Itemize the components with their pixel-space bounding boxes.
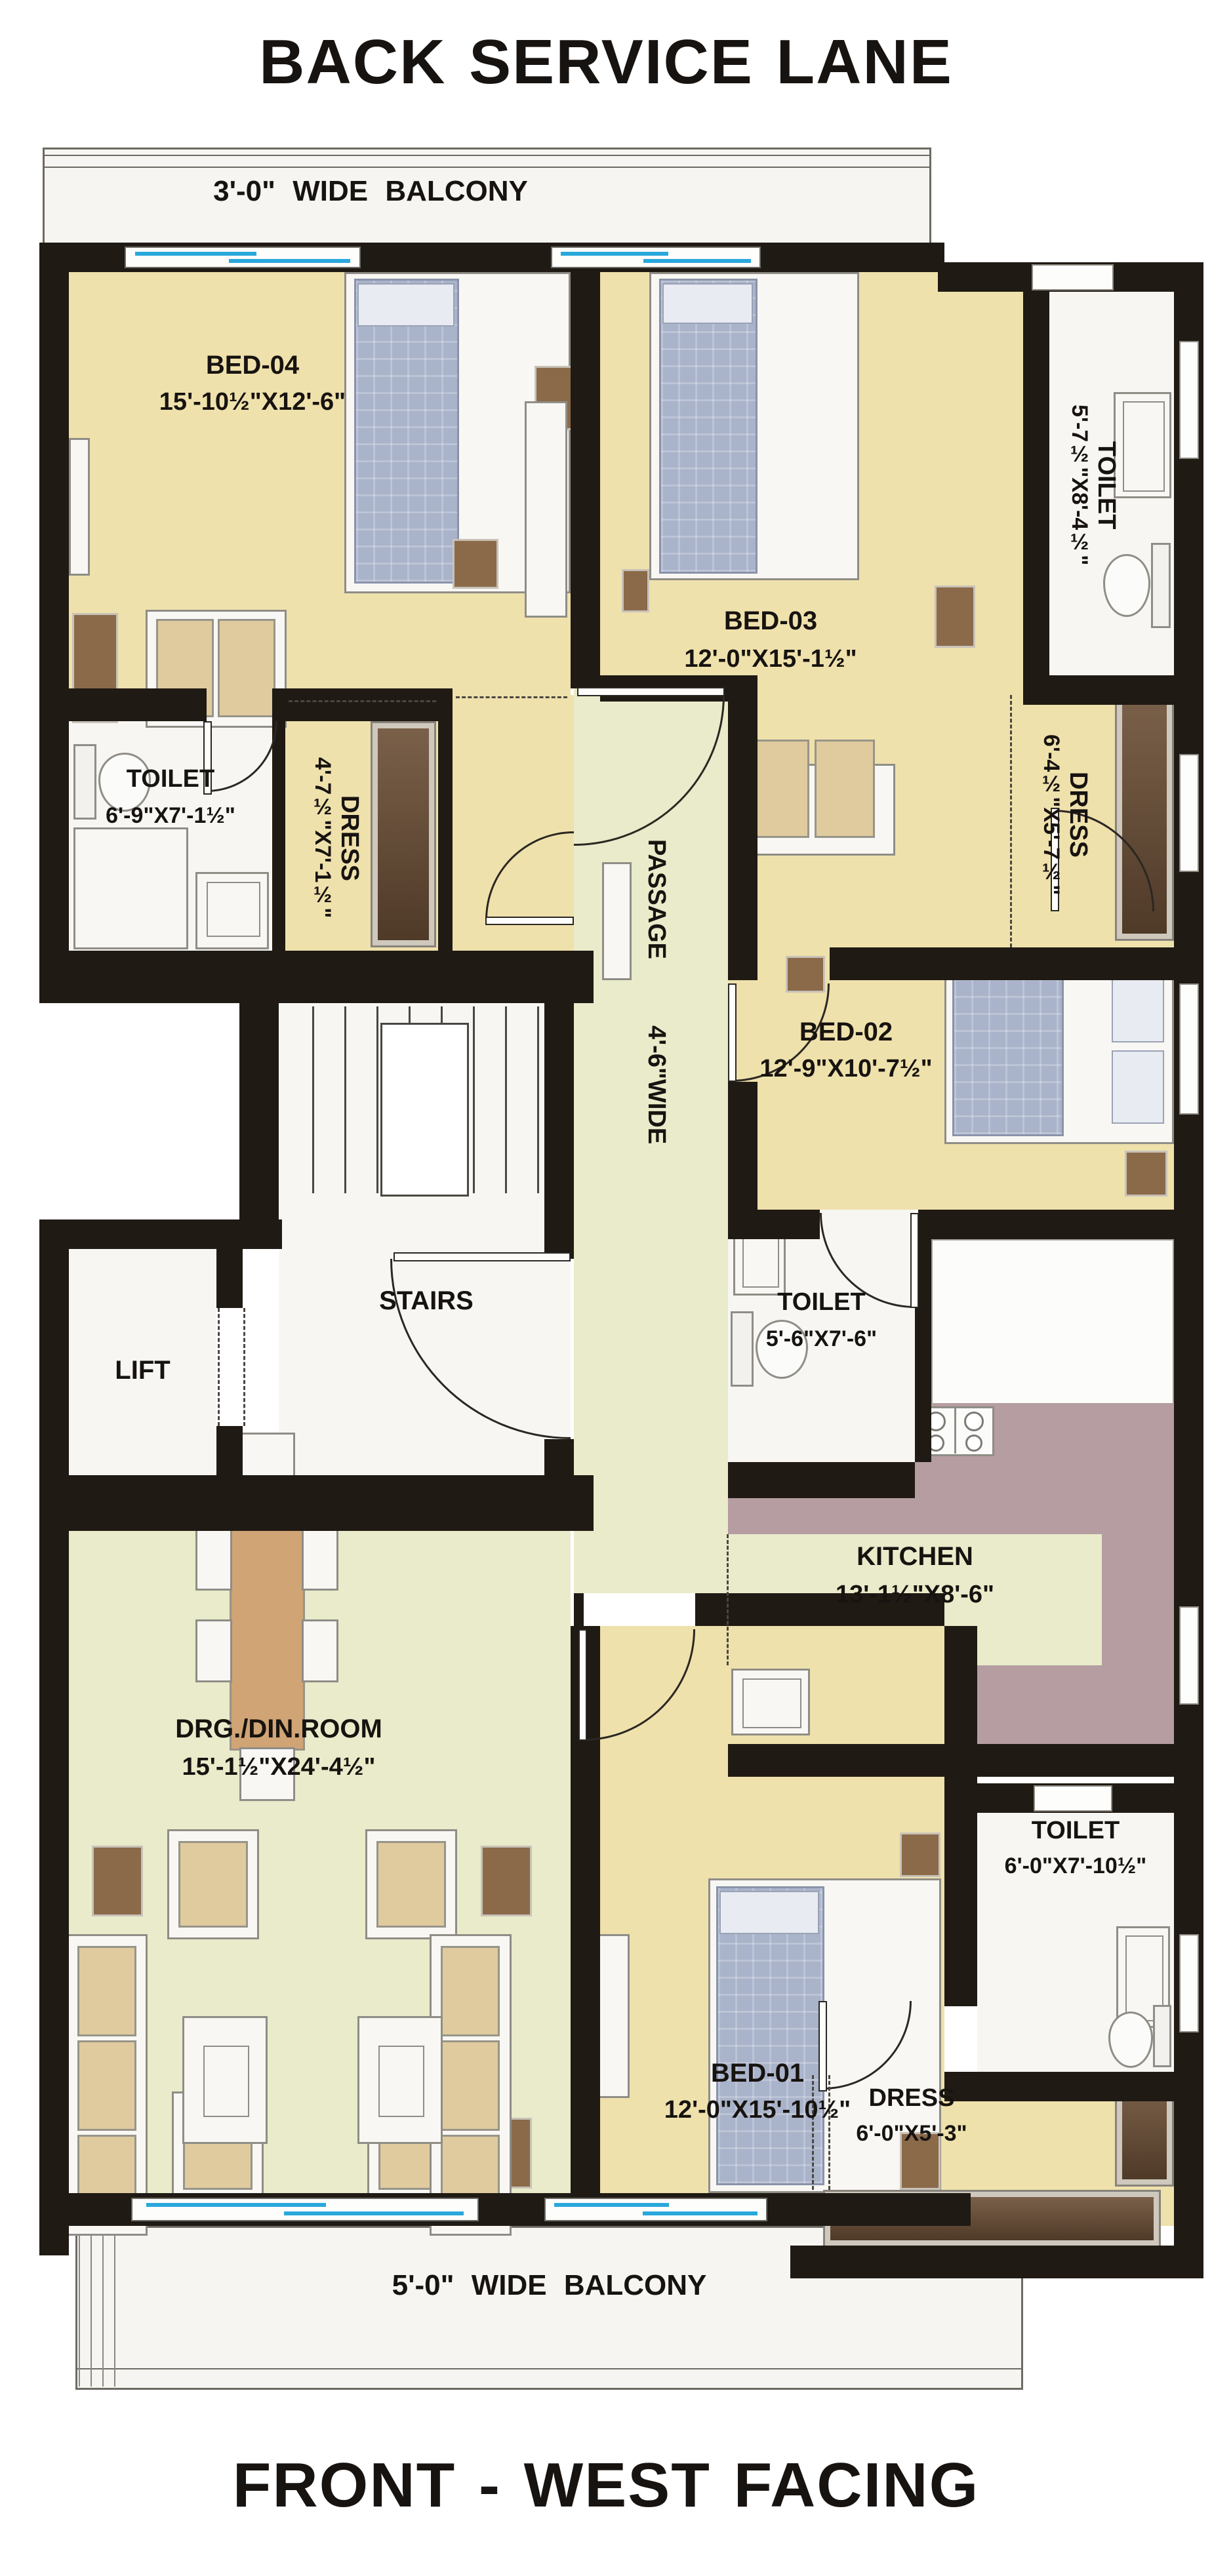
window [125,247,361,268]
bottom-balcony-edge-line [75,2368,1023,2380]
window [1179,1606,1199,1705]
sofa-cushion [77,1946,136,2036]
toilet-mid-dims: 5'-6"X7'-6" [728,1327,915,1351]
wall [544,1439,574,1475]
wall [239,1003,279,1249]
toilet-bottom-label: TOILET [977,1817,1174,1845]
coffee-table-inner [378,2046,424,2117]
bed01-side-table [900,1833,940,1877]
burner [965,1435,982,1452]
dress-left-label-group: DRESS 4'-7½"X7'-1½" [290,726,363,949]
window [1179,341,1199,459]
dress-top-dims: 6'-4½"X5'-7½" [1038,692,1064,938]
window-glass [561,252,668,256]
bed02-mattress [952,962,1064,1136]
window-glass [229,259,350,263]
toilet-mid-label: TOILET [728,1289,915,1317]
bed02-side-table [1125,1151,1167,1197]
door-leaf [578,1629,587,1741]
dress-left-dims: 4'-7½"X7'-1½" [310,726,335,949]
window-glass [643,2211,758,2215]
wall [544,1003,574,1259]
wall [571,272,600,688]
bed02-dims: 12'-9"X10'-7½" [695,1056,997,1083]
toilet-bottom-dims: 6'-0"X7'-10½" [971,1854,1181,1878]
dining-chair [302,1619,338,1682]
bed04-dresser [525,401,567,618]
dress-bottom-dims: 6'-0"X5'-3" [813,2122,1010,2146]
dress-left-label: DRESS [335,726,363,949]
bed01-pillow [719,1891,819,1934]
side-table [481,1846,532,1916]
passage-label-group: PASSAGE 4'-6"WIDE [624,839,670,1593]
toilet-left-label: TOILET [69,766,272,793]
window [1034,1785,1112,1812]
passage-dims: 4'-6"WIDE [643,1025,670,1144]
bed04-loveseat-cushion [218,619,275,717]
passage-label: PASSAGE [643,839,670,959]
vestibule-dashed [456,696,567,698]
wall [574,1593,584,1626]
wall [728,1210,820,1239]
wall [728,1462,915,1498]
sink-basin [207,882,260,937]
armchair-cushion [178,1841,248,1928]
lift-label: LIFT [69,1356,216,1385]
wc-tank [1151,543,1171,628]
front-west-facing-title: FRONT - WEST FACING [0,2451,1212,2520]
bed04-pillow [357,283,455,327]
wall [272,688,438,721]
window-glass [643,259,751,263]
shower-tray [73,827,188,949]
window [131,2198,479,2221]
wall [39,1219,282,1249]
bed03-loveseat-cushion [749,740,809,838]
window-glass [554,2203,669,2207]
window [1179,983,1199,1115]
dining-chair [195,1619,232,1682]
window [551,247,761,268]
bed03-pillow [662,283,753,324]
kitchen-sink-basin [742,1678,801,1728]
sofa-cushion [441,2040,500,2131]
window [1179,1934,1199,2032]
bed03-label: BED-03 [600,606,941,635]
wall [39,951,594,1003]
door-leaf [577,687,725,696]
bed02-pillow [1112,1050,1164,1124]
lift-opening-dashed [218,1308,245,1426]
dress-top-dashed [1010,695,1012,947]
wall [216,1426,243,1475]
wall [728,1082,758,1210]
toilet-top-dims: 5'-7½"X8'-4½" [1066,315,1092,656]
wall [1023,292,1049,675]
wall [438,688,453,957]
dress-top-label: DRESS [1064,692,1092,938]
sofa-cushion [441,1946,500,2036]
back-service-lane-title: BACK SERVICE LANE [0,28,1212,97]
kitchen-opening-dashed [727,1534,729,1665]
stair-landing [380,1023,469,1197]
wall [272,721,285,954]
window-glass [135,252,256,256]
window [544,2198,767,2221]
wc-tank [1153,2005,1171,2067]
floor-plan: BACK SERVICE LANE FRONT - WEST FACING 3'… [0,0,1212,2576]
wall [216,1249,243,1308]
drg-label: DRG./DIN.ROOM [69,1714,489,1743]
wall [944,1626,977,2006]
dress-left-wardrobe [371,721,436,947]
bed04-dims: 15'-10½"X12'-6" [69,389,436,416]
dining-chair [302,1528,338,1591]
wall [39,688,207,721]
wall [39,1531,69,2255]
wall [39,1475,594,1531]
dining-chair [195,1528,232,1591]
toilet-top-label-group: TOILET 5'-7½"X8'-4½" [1048,315,1120,656]
armchair-cushion [376,1841,446,1928]
sink-basin [1123,401,1165,492]
top-balcony-edge-lines [43,155,931,168]
wall [790,2246,1203,2278]
window-glass [284,2211,464,2215]
dress-left-dashed [289,700,436,702]
dress-bottom-label: DRESS [813,2085,1010,2112]
stairs-label: STAIRS [282,1286,571,1315]
bed03-loveseat-cushion [815,740,875,838]
wall [728,702,758,980]
kitchen-dims: 13'-1½"X8'-6" [741,1581,1089,1609]
stove-divider [954,1408,956,1454]
bed04-wall-bench [69,438,90,576]
toilet-left-dims: 6'-9"X7'-1½" [62,804,279,828]
burner [964,1412,984,1431]
bed01-label: BED-01 [594,2059,921,2088]
coffee-table-inner [203,2046,249,2117]
dress-top-label-group: DRESS 6'-4½"X5'-7½" [1020,692,1092,938]
wall [830,947,1174,980]
bed02-label: BED-02 [695,1018,997,1046]
wall [39,243,69,1003]
drg-dims: 15'-1½"X24'-4½" [69,1754,489,1781]
window [1032,264,1114,290]
bottom-balcony-steps [79,2230,125,2387]
door-leaf [394,1252,571,1261]
sofa-cushion [77,2040,136,2131]
side-table [92,1846,143,1916]
bed04-foot-table [453,539,498,589]
wall [918,1210,1174,1239]
door-leaf [485,917,574,925]
bed04-label: BED-04 [69,351,436,380]
top-balcony-label: 3'-0" WIDE BALCONY [43,176,698,207]
kitchen-label: KITCHEN [741,1542,1089,1571]
window-glass [146,2203,326,2207]
toilet-top-label: TOILET [1092,315,1120,656]
bed03-dims: 12'-0"X15'-1½" [600,646,941,673]
window [1179,754,1199,872]
